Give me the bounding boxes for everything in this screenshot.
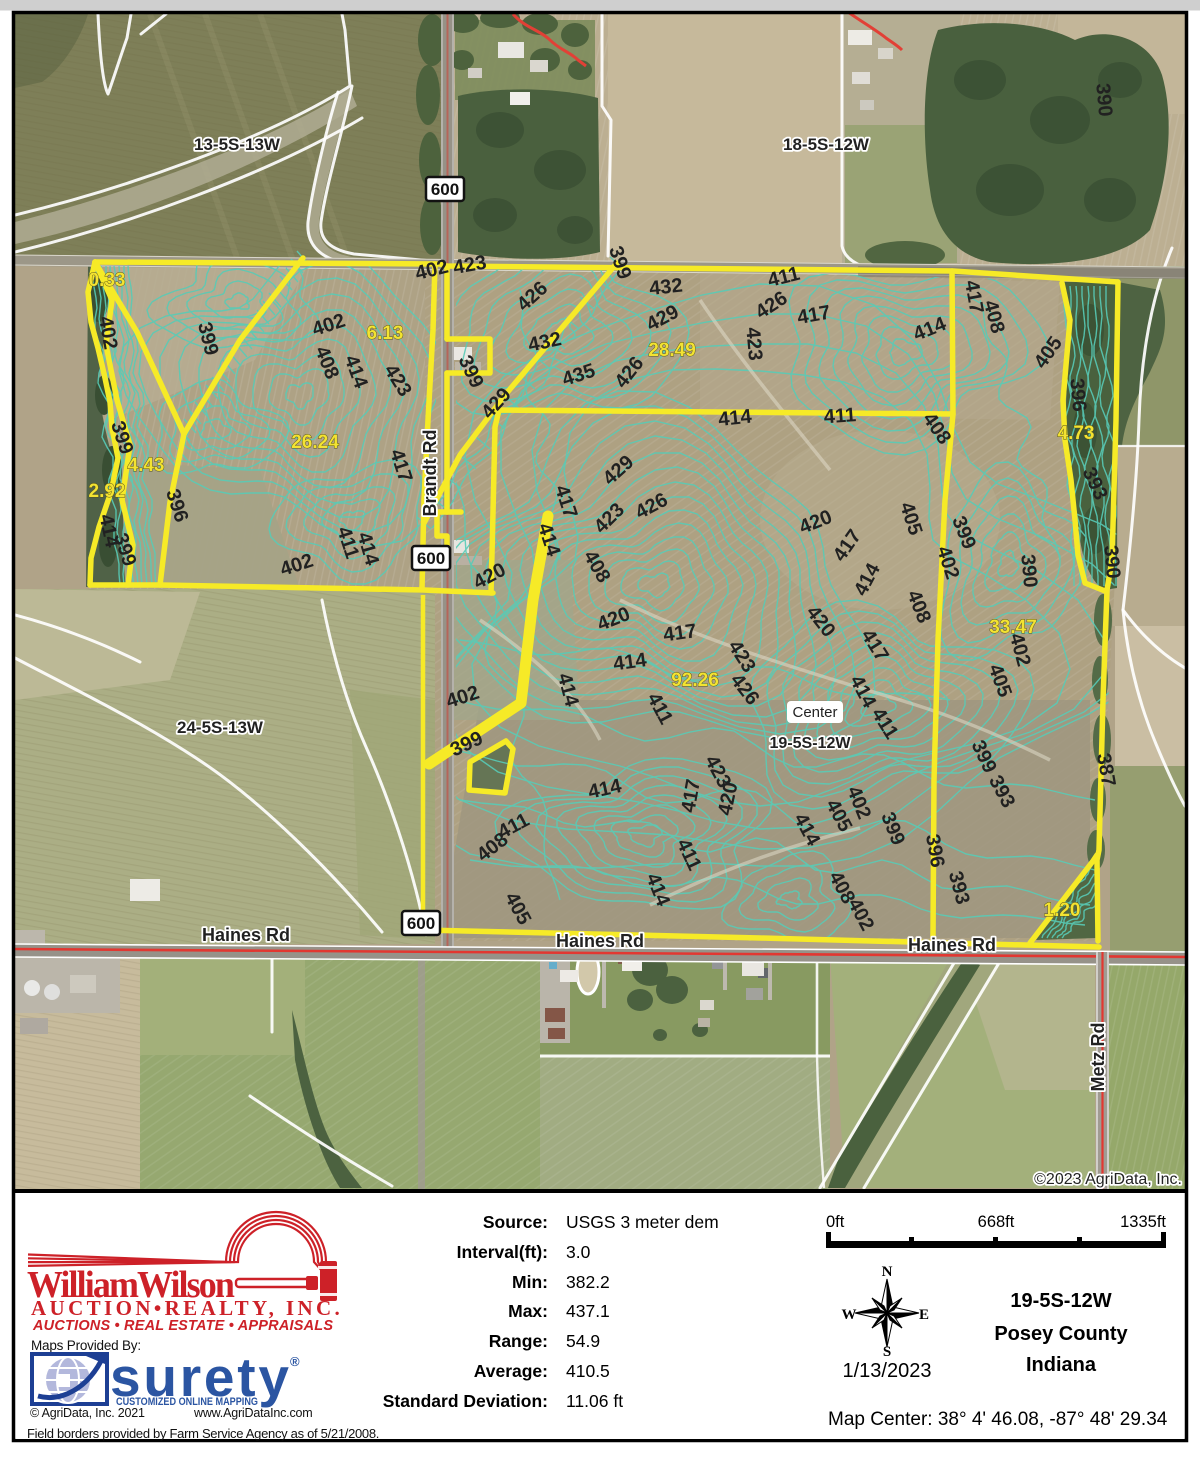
svg-text:Range:: Range: [489, 1331, 548, 1351]
svg-text:437.1: 437.1 [566, 1301, 610, 1321]
svg-text:Field borders provided by Farm: Field borders provided by Farm Service A… [27, 1426, 379, 1441]
svg-text:Indiana: Indiana [1026, 1354, 1097, 1376]
svg-text:Interval(ft):: Interval(ft): [457, 1242, 548, 1262]
svg-text:1335ft: 1335ft [1120, 1213, 1166, 1231]
svg-text:AUCTIONS • REAL ESTATE • APPRA: AUCTIONS • REAL ESTATE • APPRAISALS [32, 1318, 333, 1334]
svg-text:1/13/2023: 1/13/2023 [843, 1360, 932, 1382]
svg-text:Min:: Min: [512, 1272, 548, 1292]
svg-text:Posey County: Posey County [994, 1323, 1128, 1345]
svg-text:3.0: 3.0 [566, 1242, 591, 1262]
svg-text:410.5: 410.5 [566, 1361, 610, 1381]
svg-text:E: E [919, 1307, 929, 1323]
svg-text:0ft: 0ft [826, 1213, 845, 1231]
svg-text:©2023 AgriData, Inc.: ©2023 AgriData, Inc. [1034, 1171, 1182, 1188]
svg-text:Average:: Average: [474, 1361, 548, 1381]
svg-text:54.9: 54.9 [566, 1331, 600, 1351]
svg-text:S: S [883, 1344, 891, 1360]
svg-text:© AgriData, Inc. 2021: © AgriData, Inc. 2021 [30, 1406, 145, 1420]
svg-text:Max:: Max: [508, 1301, 548, 1321]
svg-text:W: W [842, 1307, 857, 1323]
svg-text:www.AgriDataInc.com: www.AgriDataInc.com [193, 1406, 312, 1420]
svg-text:®: ® [290, 1354, 300, 1369]
svg-text:USGS 3 meter dem: USGS 3 meter dem [566, 1212, 719, 1232]
svg-text:Source:: Source: [483, 1212, 548, 1232]
svg-text:19-5S-12W: 19-5S-12W [1010, 1290, 1111, 1312]
svg-text:Map Center: 38° 4' 46.08, -87: Map Center: 38° 4' 46.08, -87° 48' 29.34 [828, 1409, 1168, 1430]
svg-text:Standard Deviation:: Standard Deviation: [383, 1391, 548, 1411]
svg-text:382.2: 382.2 [566, 1272, 610, 1292]
svg-text:AUCTION•REALTY, INC.: AUCTION•REALTY, INC. [31, 1296, 341, 1320]
svg-text:11.06 ft: 11.06 ft [566, 1391, 623, 1411]
svg-text:N: N [882, 1264, 893, 1280]
svg-text:668ft: 668ft [978, 1213, 1015, 1231]
